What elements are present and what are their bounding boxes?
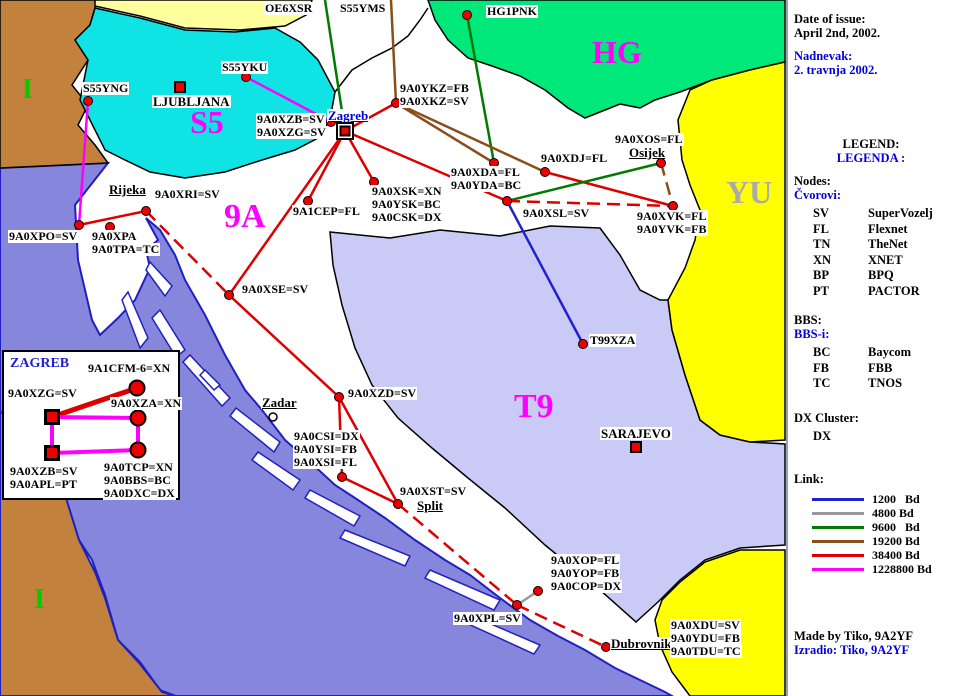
Zadar-marker [269, 413, 277, 421]
link-speed-row: 1200 Bd [788, 493, 954, 507]
link-color-swatch [812, 540, 864, 543]
node-types-table: SVSuperVozeljFLFlexnetTNTheNetXNXNETBPBP… [794, 206, 950, 299]
link-color-swatch [812, 526, 864, 529]
link-speed-row: 38400 Bd [788, 549, 954, 563]
type-abbr: SV [813, 206, 829, 221]
9A0XZD-marker [335, 393, 344, 402]
9A0CSI-marker [338, 473, 347, 482]
legend-title-hr: LEGENDA : [788, 151, 954, 166]
dx-cluster-value: DX [813, 429, 831, 444]
type-abbr: TC [813, 376, 830, 391]
link-speed-row: 19200 Bd [788, 535, 954, 549]
legend-panel: Date of issue: April 2nd, 2002. Nadnevak… [786, 0, 954, 696]
9A0XPA-marker [106, 223, 115, 232]
9A0XRI-marker [142, 207, 151, 216]
9A1CEP-marker [304, 197, 313, 206]
packet-network-map: S55YNGS55YKULJUBLJANAOE6XSRS55YMSHG1PNKZ… [0, 0, 954, 696]
link-color-swatch [812, 512, 864, 515]
9A0XSE-marker [225, 291, 234, 300]
type-name: TheNet [868, 237, 908, 252]
9A0XPO-marker [75, 221, 84, 230]
Dubrovnik-marker [602, 643, 611, 652]
link-1228800-bd [52, 417, 138, 418]
bbs-title-hr: BBS-i: [794, 327, 829, 342]
legend-row: PTPACTOR [794, 284, 950, 300]
9A0XKZ-marker [392, 99, 401, 108]
link-speed-row: 4800 Bd [788, 507, 954, 521]
type-abbr: BC [813, 345, 830, 360]
legend-title: LEGEND: [788, 137, 954, 152]
Zagreb-marker [337, 123, 353, 139]
9A1CFM-6-marker [130, 381, 145, 396]
legend-row: TNTheNet [794, 237, 950, 253]
legend-row: BPBPQ [794, 268, 950, 284]
legend-row: FLFlexnet [794, 222, 950, 238]
9A0TCP-marker [131, 443, 146, 458]
type-abbr: BP [813, 268, 829, 283]
link-speed-legend: 1200 Bd4800 Bd9600 Bd19200 Bd38400 Bd122… [788, 493, 954, 577]
type-abbr: XN [813, 253, 831, 268]
S55YKU-marker [242, 73, 251, 82]
link-speed-label: 19200 Bd [872, 534, 920, 549]
link-color-swatch [812, 554, 864, 557]
9A0XPL-marker [513, 601, 522, 610]
T99XZA-marker [579, 340, 588, 349]
legend-row: BCBaycom [794, 345, 950, 361]
nodes-title-hr: Čvorovi: [794, 188, 841, 203]
9A0XZA-marker [131, 411, 146, 426]
type-abbr: PT [813, 284, 829, 299]
9A0XSK-marker [370, 178, 379, 187]
HG1PNK-marker [463, 11, 472, 20]
link-speed-label: 1228800 Bd [872, 562, 932, 577]
9A0XOS-marker [657, 159, 666, 168]
9A0XZB-inset-marker [46, 447, 59, 460]
link-title: Link: [794, 472, 824, 487]
zagreb-inset-box [3, 351, 179, 499]
date-of-issue-label: Date of issue: [794, 12, 866, 27]
LJUBLJANA-marker [175, 82, 185, 92]
type-name: Flexnet [868, 222, 908, 237]
nodes-title: Nodes: [794, 174, 831, 189]
type-abbr: FB [813, 361, 829, 376]
croatia-map-svg [0, 0, 786, 696]
link-speed-label: 38400 Bd [872, 548, 920, 563]
date-label-hr: Nadnevak: [794, 49, 852, 64]
credit-hr: Izradio: Tiko, 9A2YF [794, 643, 909, 658]
SARAJEVO-marker [631, 442, 641, 452]
bbs-title: BBS: [794, 313, 822, 328]
type-name: SuperVozelj [868, 206, 933, 221]
bbs-types-table: BCBaycomFBFBBTCTNOS [794, 345, 950, 392]
link-color-swatch [812, 498, 864, 501]
9A0XOP-marker [534, 587, 543, 596]
9A0XVK-marker [669, 202, 678, 211]
S55YNG-marker [84, 97, 93, 106]
link-speed-label: 4800 Bd [872, 506, 914, 521]
9A0XDJ-marker [541, 168, 550, 177]
type-abbr: TN [813, 237, 830, 252]
link-speed-label: 1200 Bd [872, 492, 920, 507]
legend-row: SVSuperVozelj [794, 206, 950, 222]
dx-cluster-title: DX Cluster: [794, 411, 859, 426]
link-color-swatch [812, 568, 864, 571]
9A0XZG-marker [46, 411, 59, 424]
type-abbr: FL [813, 222, 829, 237]
map-area: S55YNGS55YKULJUBLJANAOE6XSRS55YMSHG1PNKZ… [0, 0, 786, 696]
date-value-hr: 2. travnja 2002. [794, 63, 877, 78]
credit: Made by Tiko, 9A2YF [794, 629, 913, 644]
link-speed-row: 9600 Bd [788, 521, 954, 535]
type-name: PACTOR [868, 284, 920, 299]
9A0XSL-marker [503, 197, 512, 206]
type-name: XNET [868, 253, 903, 268]
9A0XDA-marker [490, 159, 499, 168]
legend-row: XNXNET [794, 253, 950, 269]
9A0XZB-marker [327, 118, 336, 127]
link-speed-label: 9600 Bd [872, 520, 920, 535]
date-of-issue-value: April 2nd, 2002. [794, 26, 880, 41]
type-name: FBB [868, 361, 892, 376]
9A0XST-marker [394, 500, 403, 509]
legend-row: TCTNOS [794, 376, 950, 392]
type-name: BPQ [868, 268, 894, 283]
type-name: Baycom [868, 345, 911, 360]
legend-row: FBFBB [794, 361, 950, 377]
link-speed-row: 1228800 Bd [788, 563, 954, 577]
type-name: TNOS [868, 376, 902, 391]
